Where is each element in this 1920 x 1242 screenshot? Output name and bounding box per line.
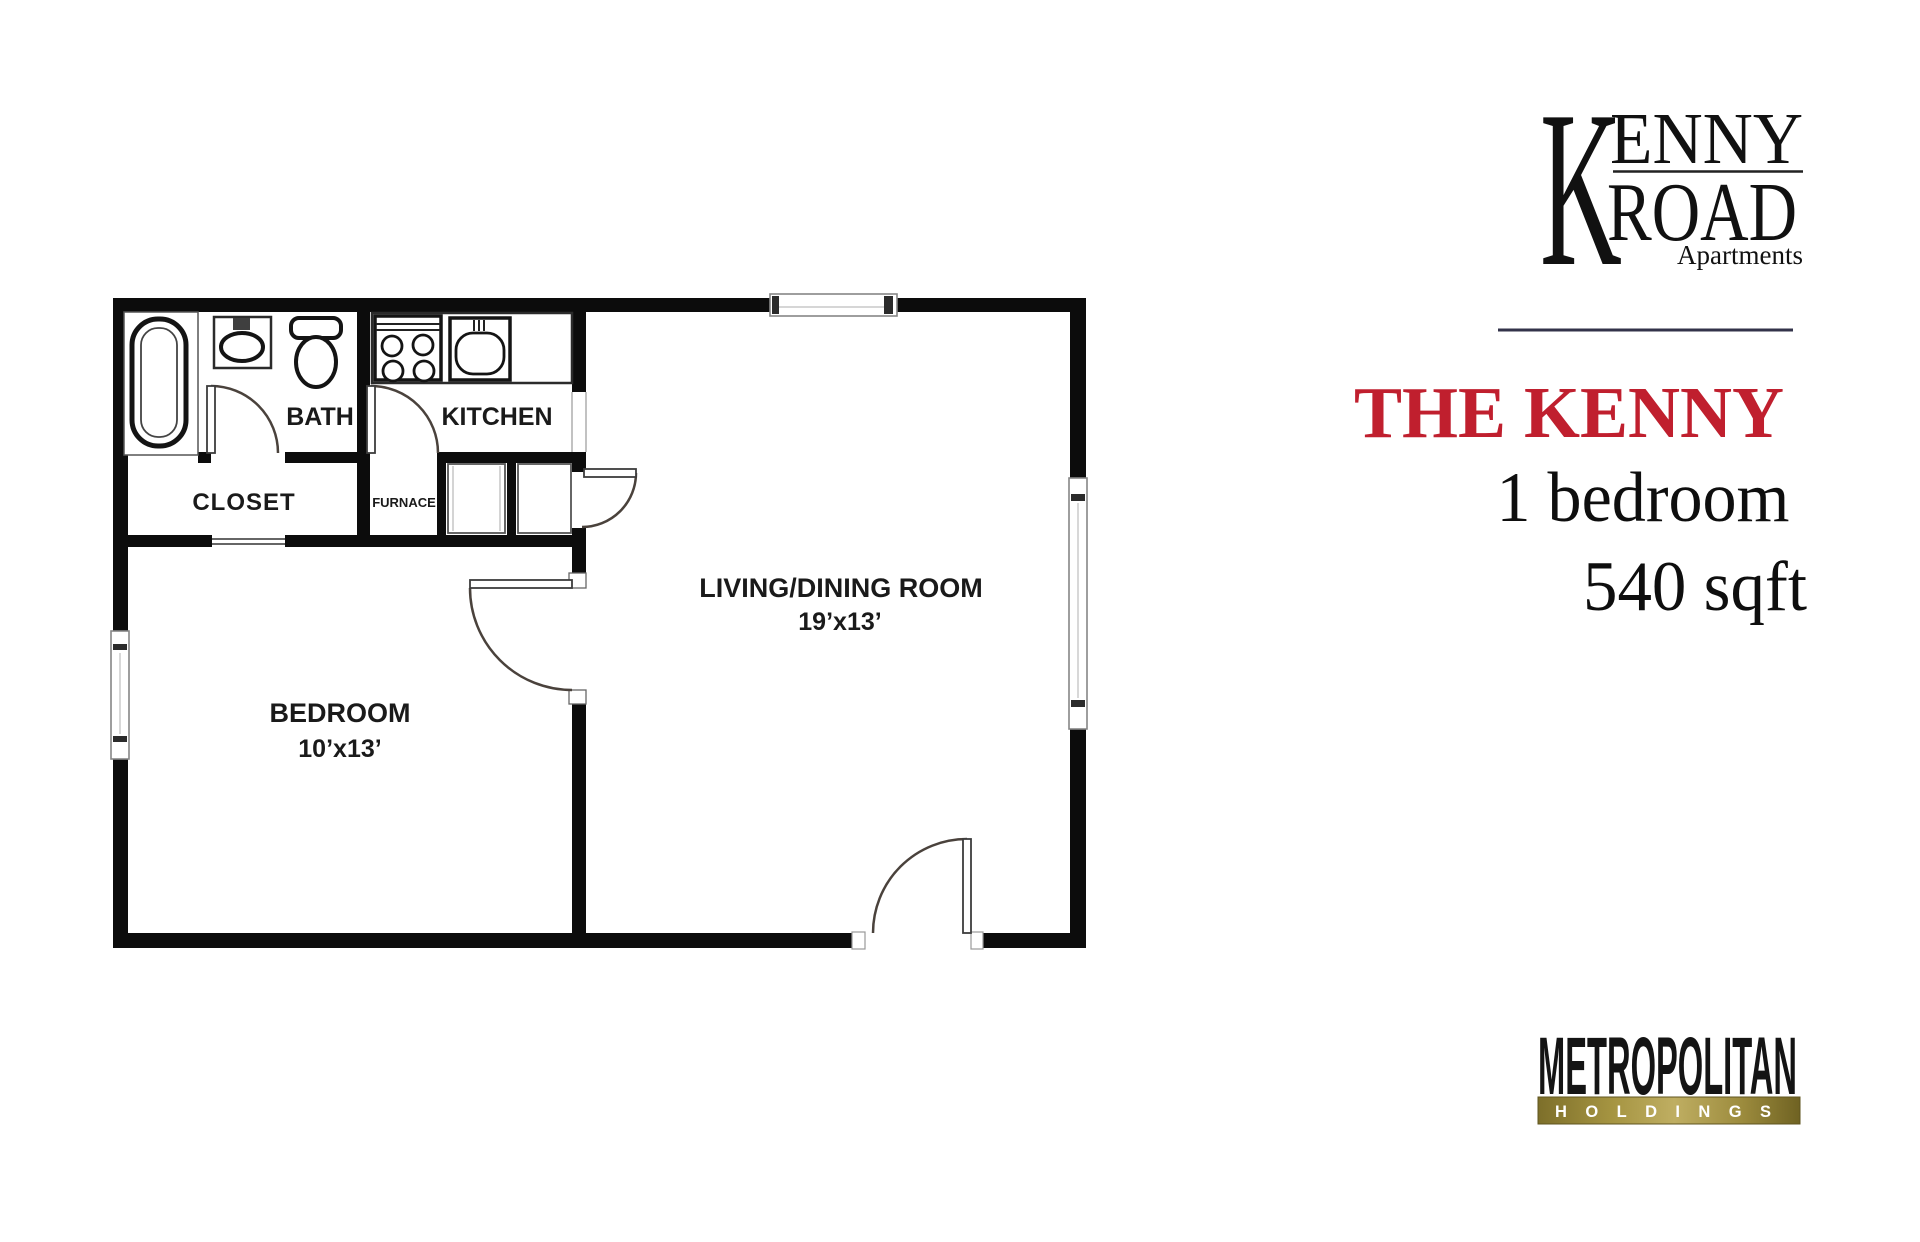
bathroom-fixtures	[124, 312, 341, 455]
window-left	[111, 631, 129, 759]
window-right-cap-bottom	[1071, 700, 1085, 707]
stove-burner-2	[413, 335, 433, 355]
window-left-cap-top	[113, 644, 127, 650]
entry-door-jamb-left	[852, 932, 865, 949]
closet-door-track	[212, 539, 285, 544]
living-room-dims: 19’x13’	[798, 608, 881, 636]
window-right	[1069, 478, 1087, 729]
living-room-label: LIVING/DINING ROOM	[699, 573, 983, 603]
bedroom-dims: 10’x13’	[298, 735, 381, 763]
wall-bath-bottom	[285, 452, 357, 463]
living-closet-door-leaf	[584, 469, 636, 477]
closet-label: CLOSET	[192, 489, 295, 516]
wall-top-left	[113, 298, 772, 312]
doors	[207, 386, 983, 949]
unit-info: THE KENNY 1 bedroom 540 sqft	[1354, 372, 1807, 626]
window-top	[770, 294, 897, 316]
bath-door-arc	[211, 386, 278, 453]
entry-door	[852, 839, 983, 949]
window-top-cap-right	[884, 296, 893, 314]
bath-door	[207, 386, 278, 453]
kenny-road-logo: K ENNY ROAD Apartments	[1540, 65, 1803, 313]
stove-burner-1	[382, 336, 402, 356]
kitchen-sink-basin	[456, 333, 504, 374]
wall-spine-lower	[572, 704, 586, 933]
entry-door-jamb-right	[971, 932, 983, 949]
entry-door-arc	[873, 839, 967, 933]
wall-closet-bottom-right	[285, 535, 586, 547]
bath-label: BATH	[286, 403, 354, 431]
wall-storage-divider	[507, 452, 516, 537]
vanity-faucet	[233, 318, 250, 330]
living-closet-door-arc	[582, 473, 636, 527]
walls	[113, 298, 1086, 948]
floorplan-sheet: BATH KITCHEN CLOSET FURNACE LIVING/DININ…	[0, 0, 1920, 1242]
wall-right-upper	[1070, 298, 1086, 480]
wall-top-right	[895, 298, 1086, 312]
kitchen-label: KITCHEN	[441, 403, 552, 431]
bedroom-label: BEDROOM	[270, 698, 411, 728]
window-left-cap-bottom	[113, 736, 127, 742]
sheet-canvas: BATH KITCHEN CLOSET FURNACE LIVING/DININ…	[0, 0, 1920, 1242]
living-closet-door	[582, 469, 636, 527]
bedroom-door-jamb-bottom	[569, 690, 586, 704]
wall-furnace-right	[437, 452, 446, 537]
window-top-frame	[770, 294, 897, 316]
unit-area: 540 sqft	[1583, 548, 1807, 626]
bedroom-door-leaf	[470, 580, 572, 588]
logo-apartments: Apartments	[1677, 240, 1803, 270]
bath-door-leaf	[207, 386, 215, 453]
wall-closet-bottom-left	[128, 535, 212, 547]
metropolitan-logo: METROPOLITAN HOLDINGS	[1538, 1021, 1800, 1124]
wall-spine-kitchen	[572, 312, 586, 392]
storage-box-2	[518, 464, 571, 533]
kitchen-opening	[572, 392, 586, 452]
bedroom-door	[470, 573, 586, 704]
stove-burner-4	[414, 361, 434, 381]
vanity-sink-bowl	[221, 333, 263, 361]
storage-box-1	[448, 464, 505, 533]
unit-bedrooms: 1 bedroom	[1497, 459, 1790, 537]
stove-burner-3	[383, 361, 403, 381]
wall-bottom-left	[113, 933, 856, 948]
furnace-door	[367, 386, 438, 453]
wall-left-lower	[113, 757, 128, 948]
entry-door-leaf	[963, 839, 971, 933]
unit-name: THE KENNY	[1354, 372, 1784, 453]
furnace-door-leaf	[367, 386, 375, 453]
furnace-label: FURNACE	[372, 495, 436, 510]
toilet-bowl	[296, 337, 336, 387]
wall-bottom-right	[982, 933, 1086, 948]
wall-right-lower	[1070, 727, 1086, 948]
window-top-cap-left	[772, 296, 779, 314]
window-right-cap-top	[1071, 494, 1085, 501]
kitchen-fixtures	[372, 313, 572, 383]
wall-spine-mid	[572, 528, 586, 573]
furnace-door-arc	[371, 386, 438, 453]
bedroom-door-arc	[470, 588, 572, 690]
